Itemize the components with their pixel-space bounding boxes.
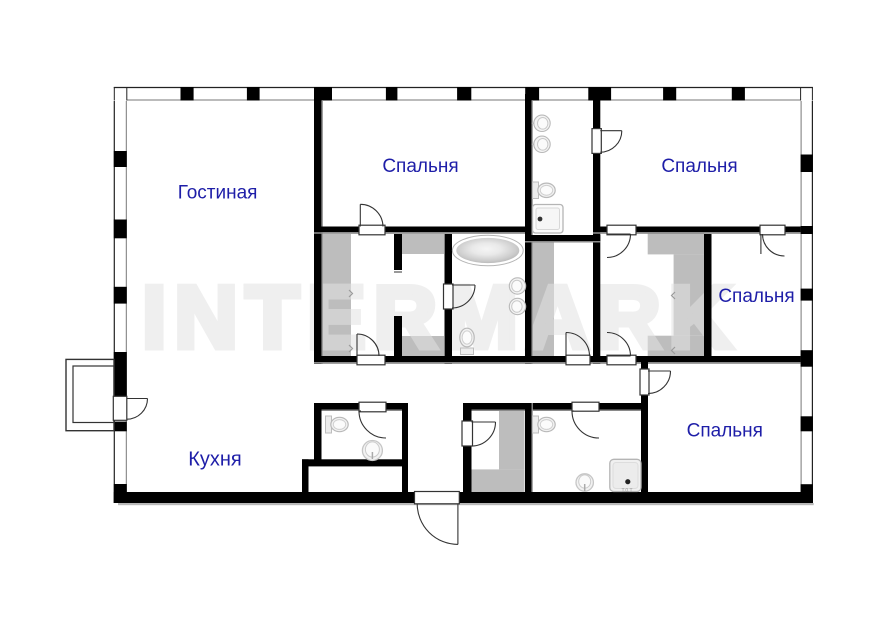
svg-text:Кухня: Кухня [188,448,242,470]
svg-text:Спальня: Спальня [718,286,794,307]
svg-text:T.0.T: T.0.T [621,488,632,494]
svg-text:Спальня: Спальня [382,156,458,177]
svg-text:INTERMARK: INTERMARK [142,268,732,367]
svg-text:Спальня: Спальня [687,421,763,442]
svg-text:Гостиная: Гостиная [178,183,258,204]
svg-text:Спальня: Спальня [661,156,737,177]
